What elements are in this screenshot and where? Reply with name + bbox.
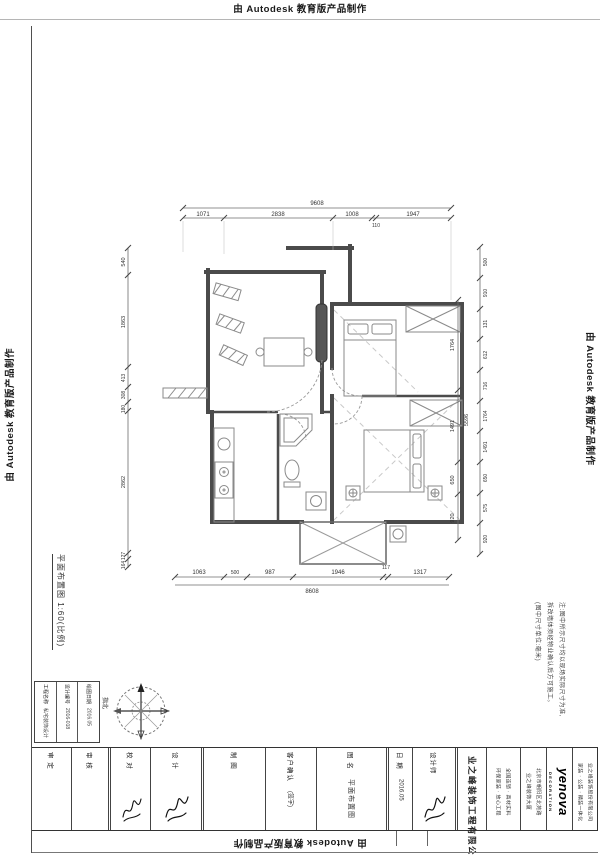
note-line: (图中尺寸单位:毫米) xyxy=(534,602,543,722)
tb-label: 校 对 xyxy=(126,752,136,770)
info-label: 设计编号 xyxy=(64,684,71,704)
svg-text:1317: 1317 xyxy=(413,570,427,576)
tb-label: 制 图 xyxy=(229,752,239,770)
svg-text:1071: 1071 xyxy=(196,212,210,218)
compass-icon xyxy=(112,682,170,740)
info-label: 绘图日期 xyxy=(85,684,92,704)
company-name: 业之峰装饰工程有限公司 xyxy=(466,756,478,856)
svg-text:1491: 1491 xyxy=(483,441,489,452)
sheet-left-border xyxy=(31,26,32,853)
note-line: 注:图中所示尺寸均以现场实际尺寸为准, xyxy=(558,602,567,722)
signature-scribble xyxy=(119,791,143,825)
svg-text:5596: 5596 xyxy=(464,414,470,426)
bed-a xyxy=(344,320,396,396)
svg-text:575: 575 xyxy=(483,504,489,513)
floor-plan-svg: 9608 1071 2838 1008 110 1947 1063 500 98… xyxy=(118,192,490,610)
info-label: 工程名称 xyxy=(42,684,49,704)
svg-text:1491: 1491 xyxy=(450,420,456,432)
compass-label: 指北 xyxy=(101,697,110,709)
tb-col-shenhe: 审 核 xyxy=(72,748,112,830)
sheet-bottom-border xyxy=(32,852,598,853)
table-stub-line xyxy=(427,831,428,846)
svg-text:1946: 1946 xyxy=(331,570,345,576)
tb-value: 2016.05 xyxy=(397,779,403,801)
drawing-title-scale: 平面布置图 1:60(比例) xyxy=(52,554,66,650)
svg-text:2838: 2838 xyxy=(271,212,285,218)
svg-text:650: 650 xyxy=(450,475,456,484)
info-value: 私宅装饰设计 xyxy=(42,708,49,738)
tb-tiny-line: 环保家装 · 放心工程 xyxy=(495,768,502,816)
svg-text:308: 308 xyxy=(121,391,127,400)
tb-col-sheji: 设 计 xyxy=(151,748,204,830)
autodesk-watermark-bottom: 由 Autodesk 教育版产品制作 xyxy=(0,837,600,851)
svg-text:180: 180 xyxy=(121,405,127,414)
svg-text:127: 127 xyxy=(121,552,127,561)
nightstand-left xyxy=(346,486,360,500)
tb-tiny-line: 北京市朝阳区北苑路 xyxy=(535,768,542,816)
svg-text:540: 540 xyxy=(121,257,127,266)
svg-text:1764: 1764 xyxy=(483,410,489,421)
toilet xyxy=(284,460,300,487)
tb-col-company: 业之峰装饰工程有限公司 xyxy=(458,748,486,830)
tb-tiny-line: 业之峰装饰大厦 xyxy=(525,773,532,810)
autodesk-watermark-right: 由 Autodesk 教育版产品制作 xyxy=(584,332,598,466)
tb-value: 平面布置图 xyxy=(346,779,356,819)
autodesk-watermark-left: 由 Autodesk 教育版产品制作 xyxy=(2,348,16,482)
svg-text:612: 612 xyxy=(483,351,489,360)
tb-col-shejishi: 设计师 xyxy=(413,748,458,830)
svg-text:987: 987 xyxy=(265,570,276,576)
svg-text:650: 650 xyxy=(483,474,489,483)
tb-label: 设 计 xyxy=(171,752,181,770)
drawing-sheet: 由 Autodesk 教育版产品制作 由 Autodesk 教育版产品制作 由 … xyxy=(0,0,600,856)
sheet-top-rule xyxy=(0,19,600,20)
svg-text:920: 920 xyxy=(450,513,456,522)
info-table: 工程名称 私宅装饰设计 设计编号 2016-018 绘图日期 2016.05 xyxy=(34,681,100,743)
svg-text:117: 117 xyxy=(382,565,390,571)
svg-text:1764: 1764 xyxy=(450,339,456,351)
info-col: 设计编号 2016-018 xyxy=(57,682,79,742)
svg-text:1063: 1063 xyxy=(192,570,206,576)
svg-text:1947: 1947 xyxy=(406,212,420,218)
svg-text:910: 910 xyxy=(483,289,489,298)
tb-label: 图 名 xyxy=(346,752,356,770)
nightstand-right xyxy=(428,486,442,500)
stove xyxy=(215,462,233,498)
balcony xyxy=(300,522,386,564)
shower-unit xyxy=(280,414,312,446)
yenova-logo: yenova xyxy=(556,768,571,816)
signature-scribble xyxy=(421,785,447,825)
tb-col-kehu: 客户确认 (签字) xyxy=(266,748,317,830)
tb-label: 客户确认 xyxy=(286,752,296,782)
tb-label: 审 定 xyxy=(46,752,56,770)
project-notes: 注:图中所示尺寸均以现场实际尺寸为准, 拆改墙体须经物业确认后方可施工。 (图中… xyxy=(534,602,567,722)
svg-text:2862: 2862 xyxy=(121,476,127,488)
note-line: 拆改墙体须经物业确认后方可施工。 xyxy=(546,602,555,722)
svg-text:1008: 1008 xyxy=(345,212,359,218)
washing-machine xyxy=(390,526,406,542)
svg-text:110: 110 xyxy=(372,223,380,229)
tb-tiny-line: 全国连锁 · 真材实料 xyxy=(505,768,512,816)
info-value: 2016.05 xyxy=(86,708,92,726)
washbasin xyxy=(306,492,326,510)
tb-tiny-line: 家装 · 公装 · 精装一体化 xyxy=(576,763,583,821)
info-col: 工程名称 私宅装饰设计 xyxy=(35,682,57,742)
title-block: 审 定 审 核 校 对 设 计 制 图 客户确认 (签字) xyxy=(32,747,598,831)
tb-col-shending: 审 定 xyxy=(32,748,72,830)
svg-text:716: 716 xyxy=(483,382,489,391)
svg-text:9608: 9608 xyxy=(310,201,324,207)
svg-text:413: 413 xyxy=(121,374,127,383)
svg-text:500: 500 xyxy=(483,258,489,267)
svg-text:164: 164 xyxy=(121,561,127,570)
tb-col-tuming: 图 名 平面布置图 xyxy=(317,748,389,830)
table-stub-line xyxy=(396,831,397,846)
entry-door-leaf xyxy=(316,304,327,362)
scale-text: 平面布置图 1:60(比例) xyxy=(55,554,66,647)
tb-label: 审 核 xyxy=(85,752,95,770)
tb-label: 日 期 xyxy=(395,752,405,770)
tb-col-address: 北京市朝阳区北苑路 业之峰装饰大厦 xyxy=(521,748,547,830)
flue-hatch xyxy=(163,388,207,398)
tb-tiny-line: 业之峰装饰股份有限公司 xyxy=(586,763,593,821)
yenova-logo-sub: DECORATION xyxy=(548,772,553,813)
svg-text:500: 500 xyxy=(231,570,240,576)
tb-label: 设计师 xyxy=(429,752,439,775)
kitchen-counter xyxy=(214,428,234,522)
info-col: 绘图日期 2016.05 xyxy=(78,682,99,742)
svg-text:131: 131 xyxy=(483,320,489,329)
svg-text:8608: 8608 xyxy=(305,589,319,595)
tb-col-jiaodui: 校 对 xyxy=(111,748,151,830)
wardrobe-a xyxy=(406,306,460,332)
svg-text:920: 920 xyxy=(483,535,489,544)
autodesk-watermark-top: 由 Autodesk 教育版产品制作 xyxy=(0,1,600,15)
sofa xyxy=(213,283,247,366)
signature-scribble xyxy=(162,787,190,825)
info-value: 2016-018 xyxy=(64,708,70,729)
tb-col-slogan: 全国连锁 · 真材实料 环保家装 · 放心工程 xyxy=(487,748,521,830)
tb-col-company-info: 业之峰装饰股份有限公司 家装 · 公装 · 精装一体化 xyxy=(573,748,597,830)
tb-col-riqi: 日 期 2016.05 xyxy=(389,748,414,830)
svg-text:1863: 1863 xyxy=(121,316,127,328)
tb-col-logo: yenova DECORATION xyxy=(547,748,572,830)
tb-value: (签字) xyxy=(286,791,295,807)
tb-col-zhitu: 制 图 xyxy=(204,748,266,830)
dining-table xyxy=(256,338,312,366)
